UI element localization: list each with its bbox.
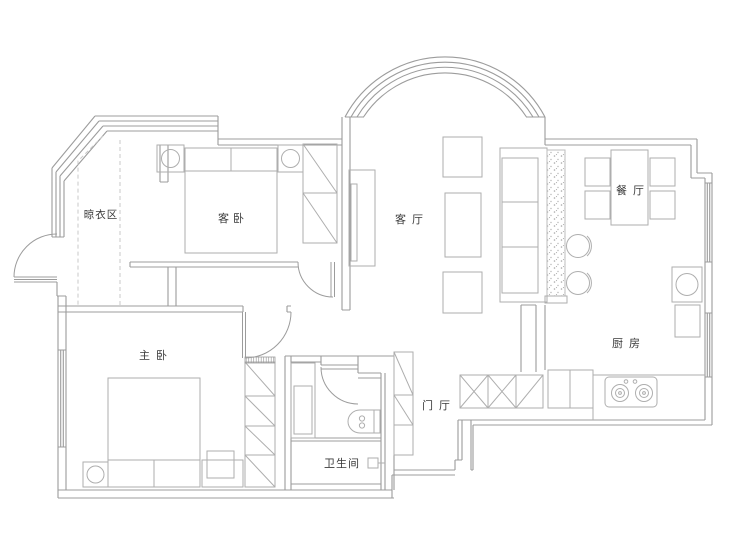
bay-window-top-left	[52, 116, 218, 237]
bathtub	[291, 363, 315, 438]
master-bed	[108, 378, 200, 487]
master-nightstand-right	[202, 451, 243, 487]
hall-cabinet	[548, 370, 593, 408]
round-chair	[567, 235, 592, 258]
arched-bay-window	[345, 57, 545, 117]
shoe-cabinet	[460, 375, 543, 408]
tv-cabinet	[349, 170, 375, 266]
drying-zone-dashes	[78, 136, 120, 306]
guest-wardrobe	[303, 144, 337, 243]
dining-chair	[650, 191, 675, 219]
master-nightstand-left	[83, 462, 108, 487]
guest-bedroom-door	[298, 262, 335, 297]
floor-drain	[368, 458, 385, 468]
dining-chair	[585, 191, 610, 219]
dining-chair	[585, 158, 610, 186]
guest-nightstand-left	[157, 145, 184, 172]
dining-chair	[650, 158, 675, 186]
toilet	[348, 410, 380, 433]
room-label-kitchen: 厨房	[612, 337, 646, 350]
room-label-living-room: 客厅	[395, 212, 429, 226]
gas-stove	[605, 377, 657, 407]
drying-area-door	[14, 234, 57, 282]
bathroom-door	[321, 365, 358, 404]
room-label-guest-bedroom: 客卧	[218, 211, 248, 225]
partition-feature-wall	[545, 150, 567, 303]
armchair-bottom	[443, 272, 482, 313]
kitchen-counter	[593, 267, 705, 420]
wall-hall-kitchen	[394, 305, 545, 470]
floor-plan-canvas: 晾衣区 客卧 客厅 餐厅 主卧 厨房 门厅 卫生间	[0, 0, 740, 555]
wall-bottom	[58, 420, 473, 498]
armchair-top	[443, 137, 482, 177]
walls	[52, 57, 712, 498]
room-label-master-bedroom: 主卧	[139, 349, 173, 362]
wall-drying-divider	[130, 145, 298, 306]
sofa	[500, 148, 547, 302]
master-wardrobe	[245, 357, 275, 487]
wall-dining-top	[545, 117, 712, 178]
guest-bed	[185, 148, 277, 253]
hall-closet	[394, 352, 413, 455]
room-label-dining-room: 餐厅	[616, 183, 650, 197]
wall-left	[57, 282, 66, 490]
master-bedroom-door	[243, 312, 292, 358]
wall-master-top	[58, 306, 291, 312]
guest-nightstand-right	[278, 145, 303, 172]
room-label-bathroom: 卫生间	[324, 456, 360, 470]
coffee-table	[445, 193, 481, 257]
floor-plan-page: 晾衣区 客卧 客厅 餐厅 主卧 厨房 门厅 卫生间	[0, 0, 740, 555]
wall-guest-top	[218, 116, 342, 145]
room-label-entrance-hall: 门厅	[422, 398, 456, 412]
round-chair	[567, 272, 592, 295]
drying-zone-line-left	[78, 136, 103, 306]
room-label-drying-area: 晾衣区	[84, 208, 119, 221]
